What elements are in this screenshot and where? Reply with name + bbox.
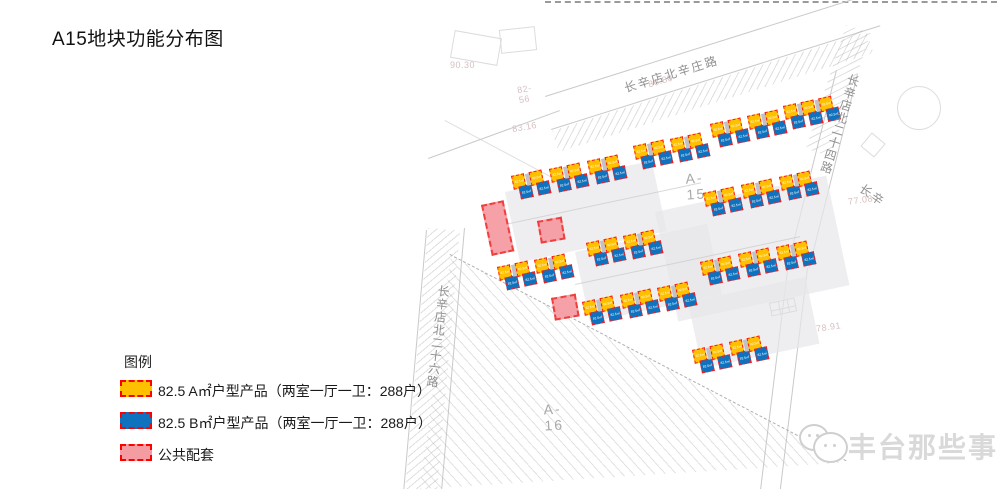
map-contour-line xyxy=(428,110,560,159)
unit-type-b: 82.5㎡ xyxy=(707,270,722,285)
survey-elevation-label: 82-56 xyxy=(516,83,534,105)
unit-type-b: 82.5㎡ xyxy=(541,268,556,283)
legend-swatch-type-a xyxy=(120,380,152,397)
unit-type-b: 82.5㎡ xyxy=(735,128,750,143)
unit-type-b: 82.5㎡ xyxy=(754,346,769,361)
slide: A15地块功能分布图 xyxy=(0,0,999,489)
unit-type-b: 82.5㎡ xyxy=(594,169,609,184)
unit-type-b: 82.5㎡ xyxy=(786,185,801,200)
unit-type-b: 82.5㎡ xyxy=(536,180,551,195)
unit-type-b: 82.5㎡ xyxy=(630,244,645,259)
legend-label-type-a: 82.5 A㎡户型产品（两室一厅一卫：288户） xyxy=(158,381,431,401)
unit-type-b: 82.5㎡ xyxy=(593,251,608,266)
area-label: A-16 xyxy=(543,401,564,434)
survey-elevation-label: 90.30 xyxy=(450,60,475,70)
unit-type-b: 82.5㎡ xyxy=(522,271,537,286)
survey-elevation-label: 83.16 xyxy=(511,120,537,134)
unit-type-b: 82.5㎡ xyxy=(612,165,627,180)
unit-type-b: 82.5㎡ xyxy=(640,154,655,169)
unit-type-b: 82.5㎡ xyxy=(783,255,798,270)
unit-type-b: 82.5㎡ xyxy=(648,240,663,255)
legend-label-public: 公共配套 xyxy=(158,445,214,465)
area-label: A-15 xyxy=(685,169,707,202)
unit-type-b: 82.5㎡ xyxy=(611,247,626,262)
unit-type-b: 82.5㎡ xyxy=(559,264,574,279)
unit-type-b: 82.5㎡ xyxy=(695,143,710,158)
legend-swatch-type-b xyxy=(120,412,152,429)
unit-type-b: 82.5㎡ xyxy=(589,310,604,325)
unit-type-b: 82.5㎡ xyxy=(728,197,743,212)
unit-type-b: 82.5㎡ xyxy=(717,354,732,369)
unit-type-b: 82.5㎡ xyxy=(808,110,823,125)
unit-type-b: 82.5㎡ xyxy=(790,114,805,129)
unit-type-b: 82.5㎡ xyxy=(766,189,781,204)
map-outline-building xyxy=(499,26,537,54)
legend-heading: 图例 xyxy=(124,352,152,372)
unit-type-b: 82.5㎡ xyxy=(763,258,778,273)
unit-type-b: 82.5㎡ xyxy=(804,181,819,196)
unit-type-b: 82.5㎡ xyxy=(772,120,787,135)
unit-type-b: 82.5㎡ xyxy=(736,350,751,365)
unit-type-b: 82.5㎡ xyxy=(645,299,660,314)
unit-type-b: 82.5㎡ xyxy=(745,262,760,277)
unit-type-b: 82.5㎡ xyxy=(607,306,622,321)
unit-type-b: 82.5㎡ xyxy=(504,275,519,290)
unit-type-b: 82.5㎡ xyxy=(627,303,642,318)
unit-type-b: 82.5㎡ xyxy=(518,184,533,199)
unit-type-b: 82.5㎡ xyxy=(664,296,679,311)
unit-type-b: 82.5㎡ xyxy=(677,147,692,162)
public-facility-block xyxy=(537,217,566,244)
public-facility-block xyxy=(551,294,580,321)
survey-elevation-label: 77.08 xyxy=(847,193,873,206)
unit-type-b: 82.5㎡ xyxy=(748,193,763,208)
map-diamond-marker xyxy=(860,132,885,157)
unit-type-b: 82.5㎡ xyxy=(717,132,732,147)
wechat-bubble-icon xyxy=(813,432,848,463)
unit-type-b: 82.5㎡ xyxy=(801,251,816,266)
unit-type-b: 82.5㎡ xyxy=(725,266,740,281)
building-cluster: 82.5㎡82.5㎡82.5㎡82.5㎡ xyxy=(670,131,713,164)
building-cluster: 82.5㎡82.5㎡82.5㎡82.5㎡ xyxy=(747,108,790,141)
unit-type-b: 82.5㎡ xyxy=(754,124,769,139)
unit-type-b: 82.5㎡ xyxy=(658,150,673,165)
watermark-text: 丰台那些事 xyxy=(848,426,998,466)
map-tree-circle xyxy=(897,86,941,130)
survey-elevation-label: 78.91 xyxy=(815,320,841,333)
building-cluster: 82.5㎡82.5㎡82.5㎡82.5㎡ xyxy=(633,138,676,171)
unit-type-b: 82.5㎡ xyxy=(710,201,725,216)
unit-type-b: 82.5㎡ xyxy=(682,292,697,307)
building-cluster: 82.5㎡82.5㎡82.5㎡82.5㎡ xyxy=(497,259,540,292)
unit-type-b: 82.5㎡ xyxy=(699,358,714,373)
unit-type-b: 82.5㎡ xyxy=(574,173,589,188)
building-cluster: 82.5㎡82.5㎡82.5㎡82.5㎡ xyxy=(710,116,753,149)
unit-type-b: 82.5㎡ xyxy=(556,177,571,192)
legend-label-type-b: 82.5 B㎡户型产品（两室一厅一卫：288户） xyxy=(158,413,432,433)
legend-swatch-public xyxy=(120,444,152,461)
